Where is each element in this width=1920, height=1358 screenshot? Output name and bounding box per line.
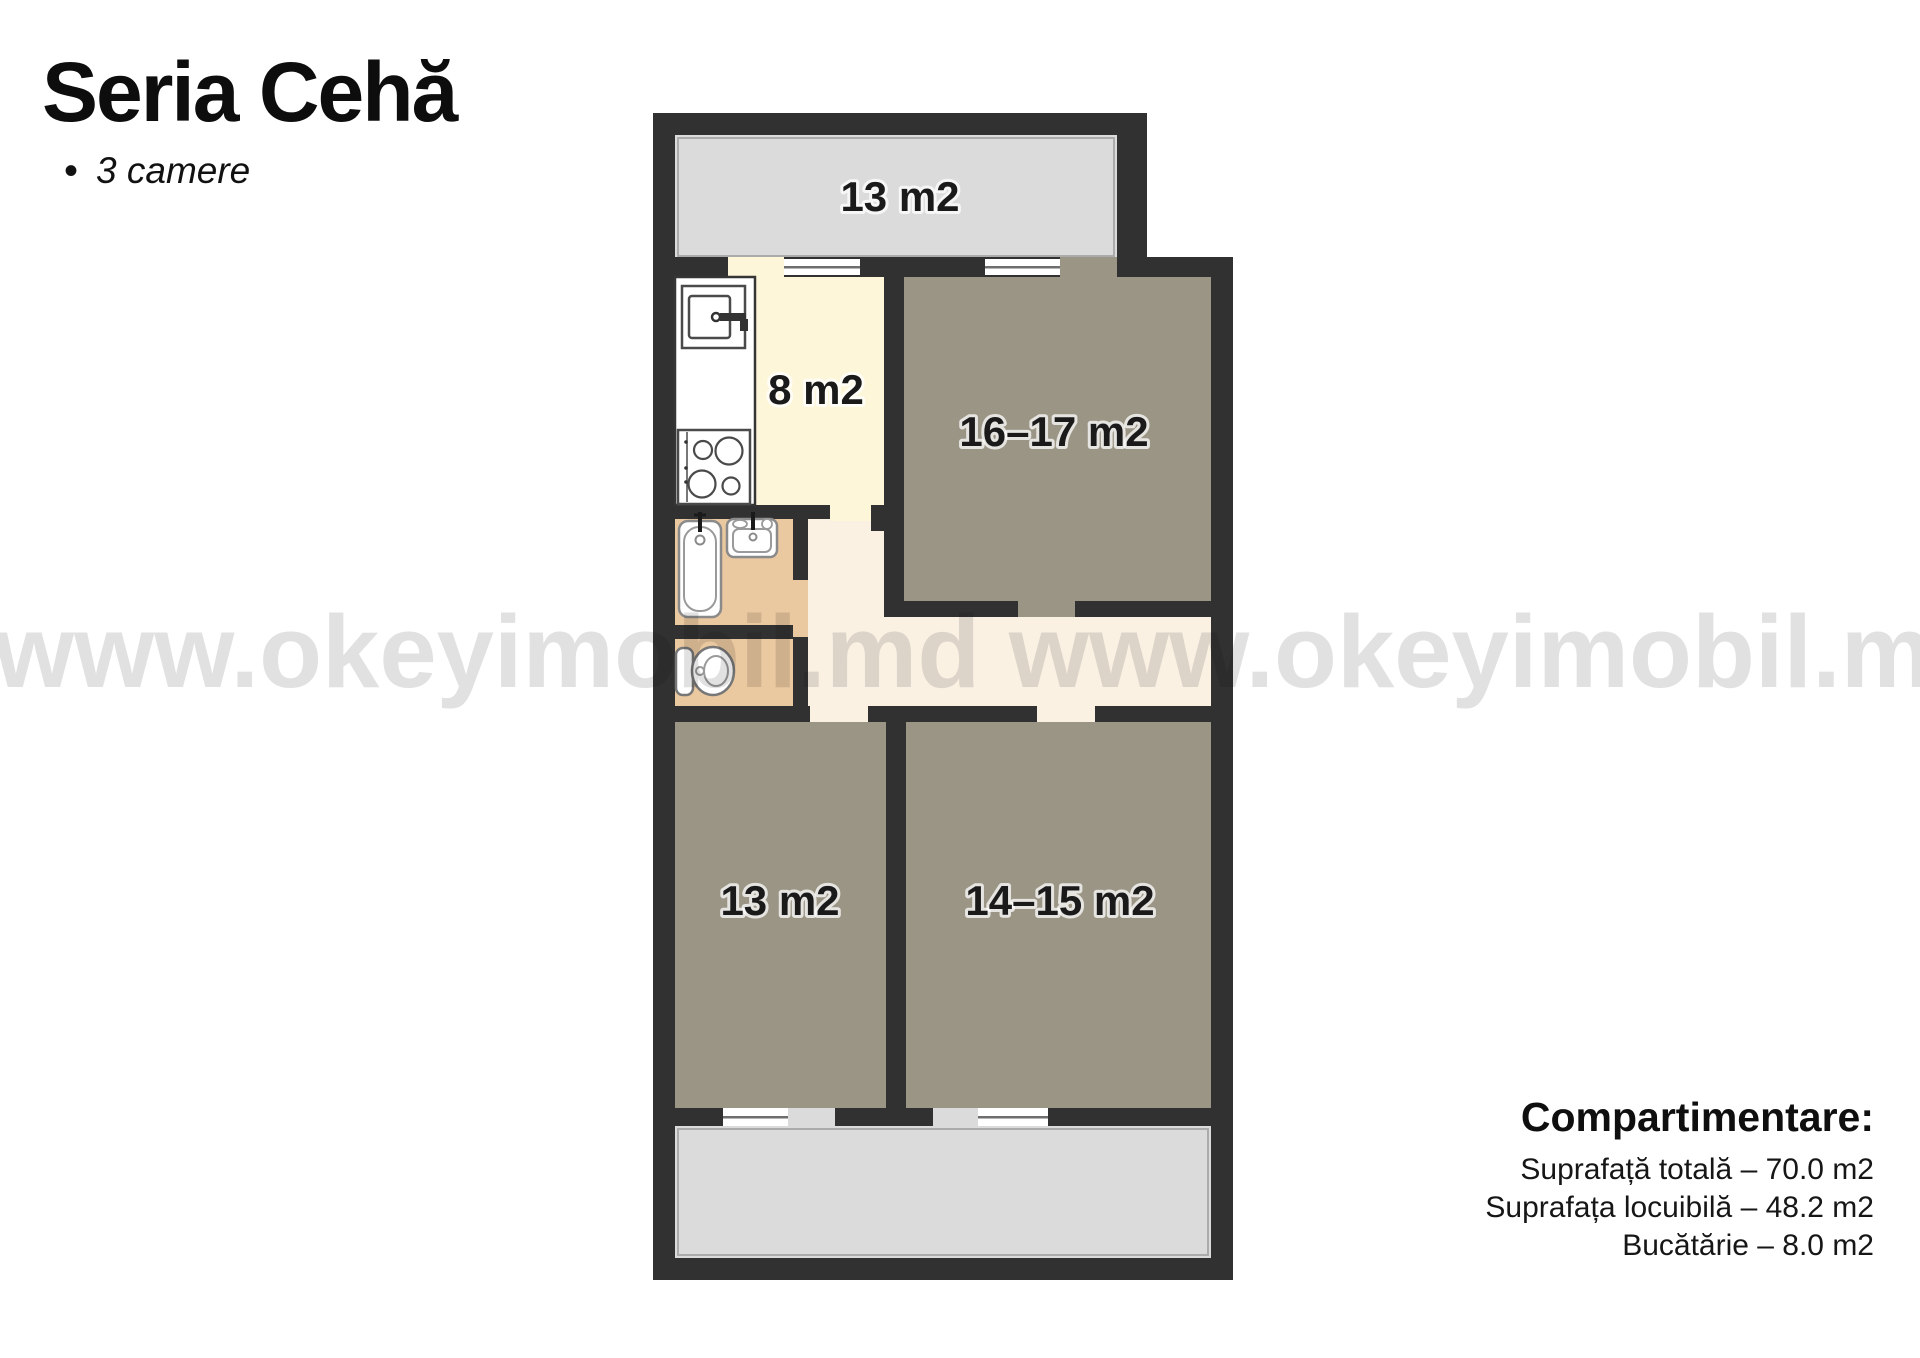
bedroom-left-window-icon <box>723 1108 788 1126</box>
bedroom-right-balcony-door <box>933 1108 978 1126</box>
living-balcony-door <box>1060 257 1117 277</box>
page-title: Seria Cehă <box>42 48 456 136</box>
wall-right <box>1211 257 1233 1280</box>
wall-kitchen-stub <box>871 505 886 531</box>
bathroom-hall-door <box>793 580 808 637</box>
bedroom-right-window-icon <box>978 1108 1048 1126</box>
summary-line-kitchen: Bucătărie – 8.0 m2 <box>1485 1227 1874 1265</box>
wall-living-bottom-right <box>1075 601 1211 617</box>
room-label-bedroom-left: 13 m2 <box>720 877 839 924</box>
summary-line-living: Suprafața locuibilă – 48.2 m2 <box>1485 1189 1874 1227</box>
living-hall-door <box>1018 601 1075 617</box>
living-window-icon <box>985 259 1060 275</box>
room-label-bedroom-right: 14–15 m2 <box>965 877 1154 924</box>
wall-living-bottom-left <box>884 601 1018 617</box>
wall-kitchen-living-divider <box>884 277 904 617</box>
wall-bath-wc-divider <box>653 625 793 639</box>
wall-bedrooms-divider <box>886 706 906 1126</box>
room-label-kitchen: 8 m2 <box>768 366 864 413</box>
subtitle-row: • 3 camere <box>64 150 456 192</box>
kitchen-window-icon <box>784 259 860 275</box>
wall-bath-right-upper <box>793 519 808 580</box>
bedroom-left-balcony-door <box>788 1108 835 1126</box>
wall-bath-right-lower <box>793 637 808 707</box>
summary-heading: Compartimentare: <box>1485 1094 1874 1141</box>
wall-kitchen-bottom <box>653 505 830 519</box>
summary-line-total: Suprafață totală – 70.0 m2 <box>1485 1151 1874 1189</box>
kitchen-balcony-door <box>728 257 784 277</box>
summary-lines: Suprafață totală – 70.0 m2 Suprafața loc… <box>1485 1151 1874 1265</box>
page-subtitle: 3 camere <box>96 150 250 192</box>
wall-bottom <box>653 1258 1233 1280</box>
wall-balcony-right <box>1117 113 1147 277</box>
kitchen-sink-icon <box>682 286 748 348</box>
wall-top <box>653 113 1147 135</box>
summary-block: Compartimentare: Suprafață totală – 70.0… <box>1485 1094 1874 1265</box>
hallway-arm-fill <box>808 519 884 617</box>
toilet-icon <box>676 647 734 695</box>
bedroom-left-door <box>810 706 868 722</box>
kitchen-hall-door <box>830 505 871 521</box>
bathtub-icon <box>679 512 721 617</box>
bathroom-sink-icon <box>727 512 777 557</box>
balcony-bottom-fill <box>675 1126 1211 1258</box>
hallway-main-fill <box>808 617 1211 706</box>
bedroom-right-door <box>1037 706 1095 722</box>
wall-hall-bottom-right <box>1095 706 1211 722</box>
room-label-living: 16–17 m2 <box>959 408 1148 455</box>
wall-bedrooms-bottom-2 <box>835 1108 933 1126</box>
stove-icon <box>678 430 750 504</box>
wall-hall-bottom-left <box>653 706 810 722</box>
wall-bedrooms-bottom-1 <box>653 1108 723 1126</box>
room-label-balcony-top: 13 m2 <box>840 173 959 220</box>
wall-bedrooms-bottom-3 <box>1048 1108 1211 1126</box>
bullet-icon: • <box>64 151 78 191</box>
page-header: Seria Cehă • 3 camere <box>42 48 456 192</box>
